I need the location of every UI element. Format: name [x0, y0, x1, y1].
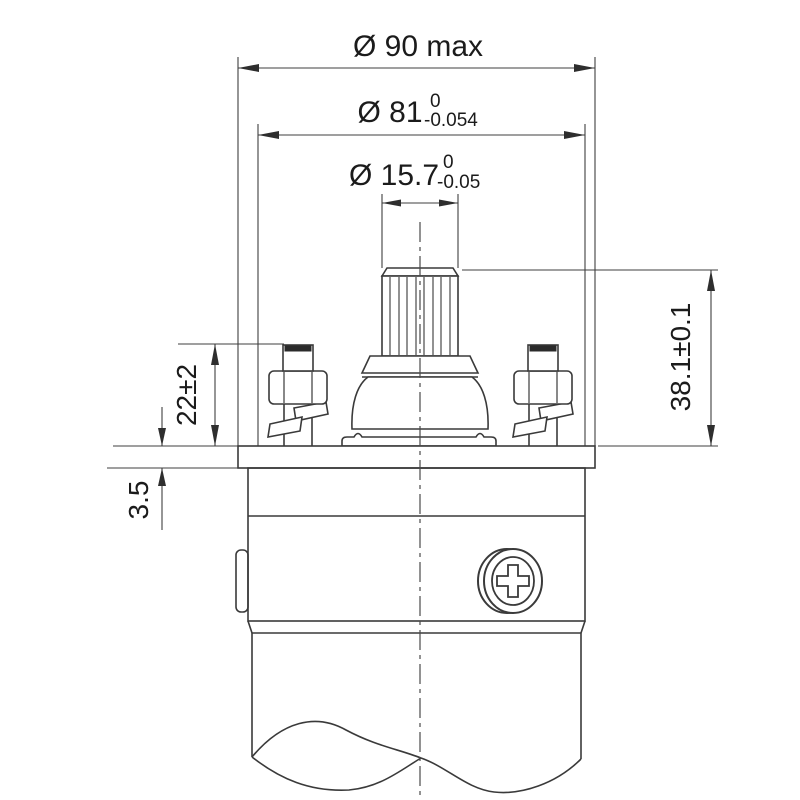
dim-label-diameter-81: Ø 81: [357, 96, 422, 129]
hex-nut-right: [514, 371, 572, 404]
bushing-dome: [342, 377, 496, 446]
side-tab: [236, 550, 248, 612]
solder-lug-left-lower: [268, 417, 302, 437]
dim-label-diameter-15-7: Ø 15.7: [349, 159, 439, 192]
bushing-base-ring: [342, 434, 496, 447]
hex-nut-left: [269, 371, 327, 404]
shaft-tube: [248, 621, 585, 759]
dim-label-diameter-81-tol-lower: -0.054: [424, 110, 478, 131]
solder-lug-right-lower: [513, 417, 547, 437]
engineering-drawing: Ø 90 max Ø 81 0 -0.054 Ø 15.7 0 -0.05 38…: [0, 0, 800, 800]
technical-drawing-canvas: Ø 90 max Ø 81 0 -0.054 Ø 15.7 0 -0.05 38…: [0, 0, 800, 800]
dim-label-diameter-81-tol-upper: 0: [430, 91, 441, 112]
dim-label-height-3-5: 3.5: [123, 481, 154, 520]
dim-label-diameter-90-max: Ø 90 max: [353, 30, 483, 63]
phillips-screw: [478, 549, 542, 613]
terminal-right: [513, 345, 573, 446]
dim-label-diameter-15-7-tol-lower: -0.05: [437, 172, 480, 193]
terminal-left: [268, 345, 328, 446]
break-lines: [252, 721, 581, 792]
mounting-plate: [238, 446, 595, 468]
dim-label-diameter-15-7-tol-upper: 0: [443, 152, 454, 173]
dim-label-height-38-1: 38.1±0.1: [665, 303, 696, 412]
dim-label-height-22: 22±2: [171, 364, 202, 426]
